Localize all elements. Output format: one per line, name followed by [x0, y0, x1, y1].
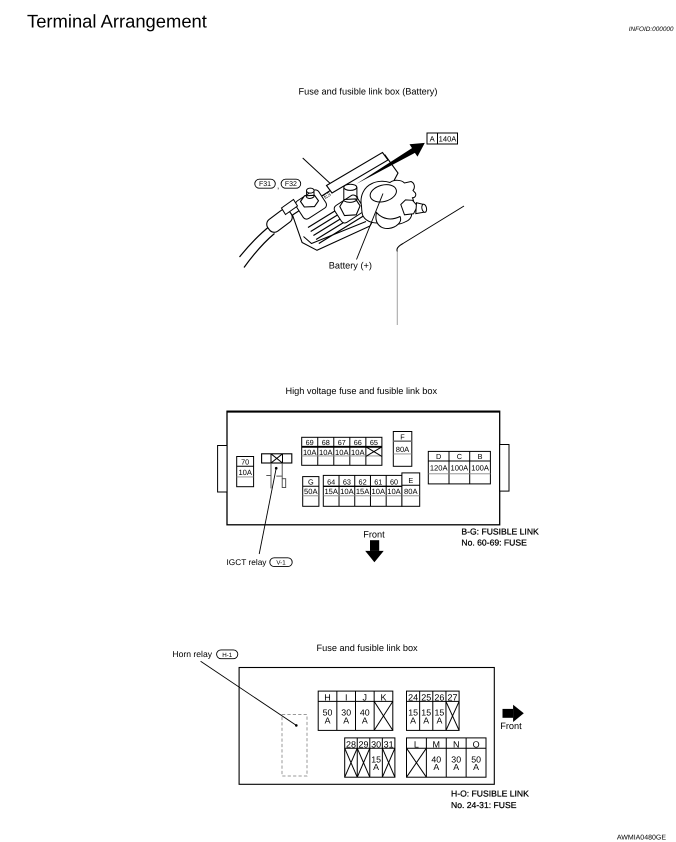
svg-text:10A: 10A: [340, 487, 354, 496]
svg-text:IGCT relay: IGCT relay: [227, 557, 268, 567]
svg-text:O: O: [473, 739, 480, 749]
svg-text:A: A: [362, 715, 368, 725]
svg-text:10A: 10A: [335, 448, 349, 457]
svg-text:Terminal Arrangement: Terminal Arrangement: [27, 10, 207, 31]
svg-text:H: H: [324, 693, 331, 703]
svg-text:60: 60: [390, 478, 398, 487]
svg-text:29: 29: [358, 739, 368, 749]
svg-text:E: E: [408, 476, 413, 485]
svg-text:26: 26: [434, 693, 444, 703]
svg-text:100A: 100A: [451, 464, 470, 473]
svg-text:AWMIA0480GE: AWMIA0480GE: [617, 835, 666, 842]
svg-text:10A: 10A: [387, 487, 401, 496]
svg-text:A: A: [436, 715, 442, 725]
svg-text:D: D: [436, 452, 441, 461]
svg-text:A: A: [473, 762, 479, 772]
svg-text:15A: 15A: [324, 487, 338, 496]
svg-text:10A: 10A: [303, 448, 317, 457]
svg-text:Front: Front: [363, 530, 385, 540]
svg-text:A: A: [343, 715, 349, 725]
svg-text:J: J: [363, 693, 368, 703]
svg-text:B: B: [478, 452, 483, 461]
svg-text:F32: F32: [285, 181, 297, 188]
svg-text:INFOID:000000: INFOID:000000: [629, 26, 674, 33]
svg-text:68: 68: [322, 438, 330, 447]
svg-text:F31: F31: [259, 181, 271, 188]
svg-text:G: G: [308, 478, 314, 487]
svg-text:H-O: FUSIBLE LINK: H-O: FUSIBLE LINK: [451, 788, 529, 798]
svg-text:50A: 50A: [304, 487, 318, 496]
svg-text:M: M: [433, 739, 441, 749]
svg-text:Horn relay: Horn relay: [172, 649, 212, 659]
svg-text:C: C: [457, 452, 462, 461]
svg-text:Battery (+): Battery (+): [329, 260, 372, 270]
svg-text:15A: 15A: [356, 487, 370, 496]
svg-text:V-1: V-1: [276, 560, 286, 567]
svg-text:65: 65: [370, 438, 378, 447]
svg-text:140A: 140A: [439, 134, 458, 143]
svg-text:,: ,: [277, 182, 279, 191]
svg-text:No. 60-69: FUSE: No. 60-69: FUSE: [461, 538, 527, 548]
svg-text:70: 70: [241, 457, 249, 466]
svg-text:F: F: [400, 432, 405, 441]
svg-text:B-G: FUSIBLE LINK: B-G: FUSIBLE LINK: [461, 526, 539, 536]
svg-text:10A: 10A: [238, 468, 252, 477]
svg-text:High voltage fuse and fusible: High voltage fuse and fusible link box: [285, 386, 437, 396]
svg-text:A: A: [410, 715, 416, 725]
svg-text:A: A: [423, 715, 429, 725]
svg-text:25: 25: [421, 693, 431, 703]
svg-text:24: 24: [408, 693, 418, 703]
svg-text:I: I: [345, 693, 348, 703]
svg-text:Front: Front: [500, 721, 522, 731]
svg-text:L: L: [414, 739, 419, 749]
svg-text:Fuse and fusible link box: Fuse and fusible link box: [317, 643, 419, 653]
svg-text:A: A: [433, 762, 439, 772]
svg-text:A: A: [325, 715, 331, 725]
svg-text:A: A: [373, 762, 379, 772]
svg-text:69: 69: [306, 438, 314, 447]
svg-text:10A: 10A: [319, 448, 333, 457]
svg-text:27: 27: [447, 693, 457, 703]
svg-text:No. 24-31: FUSE: No. 24-31: FUSE: [451, 800, 517, 810]
svg-text:A: A: [453, 762, 459, 772]
svg-text:H-1: H-1: [222, 652, 233, 659]
svg-text:N: N: [453, 739, 460, 749]
svg-text:10A: 10A: [372, 487, 386, 496]
svg-text:80A: 80A: [396, 445, 410, 454]
svg-text:66: 66: [354, 438, 362, 447]
svg-text:100A: 100A: [471, 464, 490, 473]
svg-text:31: 31: [384, 739, 394, 749]
svg-text:30: 30: [371, 739, 381, 749]
svg-text:28: 28: [346, 739, 356, 749]
svg-text:10A: 10A: [351, 448, 365, 457]
svg-text:80A: 80A: [404, 487, 418, 496]
svg-text:63: 63: [343, 478, 351, 487]
svg-text:64: 64: [327, 478, 335, 487]
svg-text:K: K: [380, 693, 386, 703]
svg-text:67: 67: [338, 438, 346, 447]
svg-text:Fuse and fusible link box (Bat: Fuse and fusible link box (Battery): [299, 87, 438, 97]
svg-text:62: 62: [359, 478, 367, 487]
svg-text:61: 61: [374, 478, 382, 487]
svg-text:120A: 120A: [430, 464, 449, 473]
